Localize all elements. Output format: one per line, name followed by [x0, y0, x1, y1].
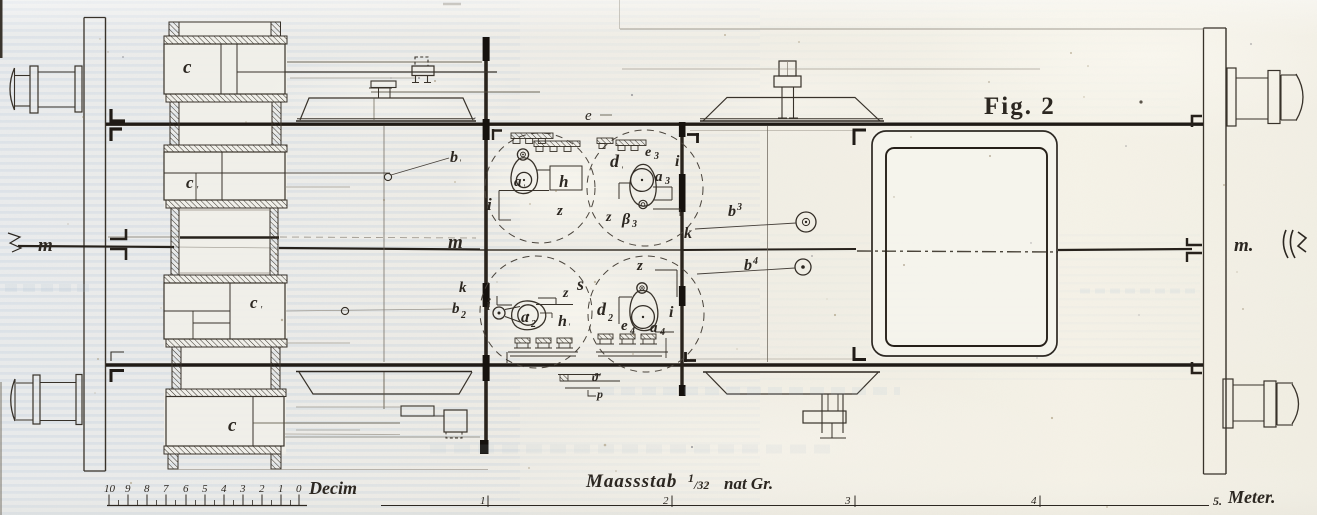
svg-text:i: i [486, 295, 491, 314]
svg-text:8: 8 [144, 483, 150, 495]
svg-text:2: 2 [607, 313, 613, 324]
svg-text:Maassstab: Maassstab [585, 471, 677, 492]
svg-text:2: 2 [259, 483, 265, 495]
svg-text:a: a [655, 169, 663, 185]
svg-text:c: c [228, 415, 237, 436]
svg-text:1: 1 [480, 495, 486, 507]
svg-text:h: h [559, 172, 568, 191]
svg-text:m.: m. [1234, 235, 1254, 256]
svg-text:3: 3 [664, 176, 670, 187]
svg-text:3: 3 [631, 219, 637, 230]
svg-text:a: a [650, 320, 658, 336]
svg-text:2: 2 [460, 310, 466, 321]
svg-text:3: 3 [844, 495, 851, 507]
svg-text:5.: 5. [1213, 494, 1222, 508]
svg-text:z: z [605, 210, 612, 225]
svg-text:2: 2 [663, 495, 669, 507]
svg-text:10: 10 [104, 483, 116, 495]
svg-text:β: β [621, 211, 631, 228]
svg-text:4: 4 [221, 483, 227, 495]
svg-text:z: z [562, 286, 569, 301]
svg-text:m: m [448, 232, 463, 253]
svg-text:b: b [450, 149, 458, 166]
svg-text:b: b [452, 301, 460, 317]
svg-text:5: 5 [202, 483, 208, 495]
svg-text:e: e [621, 318, 628, 334]
svg-text:i: i [675, 153, 680, 170]
svg-text:d: d [610, 151, 620, 171]
svg-text:i: i [487, 195, 492, 214]
svg-text:1: 1 [278, 483, 284, 495]
svg-text:a: a [514, 174, 522, 190]
svg-text:0: 0 [296, 483, 302, 495]
svg-text:e: e [645, 145, 651, 160]
svg-text:Meter.: Meter. [1227, 487, 1276, 507]
svg-text:k: k [459, 280, 467, 296]
svg-text:9: 9 [125, 483, 131, 495]
svg-text:2: 2 [530, 319, 536, 330]
svg-text:7: 7 [163, 483, 169, 495]
svg-text:4: 4 [752, 256, 758, 267]
svg-text:s: s [576, 274, 584, 294]
svg-text:4: 4 [1031, 495, 1037, 507]
svg-text:3: 3 [239, 483, 246, 495]
svg-text:ϑ′: ϑ′ [592, 370, 602, 384]
svg-text:b: b [728, 203, 736, 220]
svg-text:c: c [183, 57, 192, 78]
svg-text:4: 4 [659, 327, 665, 338]
svg-text:e: e [585, 108, 592, 124]
svg-text:Decim: Decim [308, 478, 357, 498]
svg-text:k: k [684, 225, 692, 242]
svg-text:3: 3 [653, 151, 659, 162]
svg-text:Fig. 2: Fig. 2 [984, 93, 1056, 120]
svg-text:i: i [669, 304, 674, 321]
svg-text:z: z [556, 203, 563, 219]
svg-text:h: h [558, 313, 567, 330]
svg-text:b: b [744, 257, 752, 274]
svg-text:c: c [186, 173, 194, 192]
svg-text:nat Gr.: nat Gr. [724, 474, 773, 493]
svg-text:3: 3 [736, 202, 742, 213]
svg-text:c: c [250, 293, 258, 312]
svg-text:d: d [597, 299, 607, 319]
svg-text:a: a [521, 309, 529, 326]
svg-text:6: 6 [183, 483, 189, 495]
svg-text:z: z [636, 258, 643, 274]
svg-text:m: m [38, 235, 53, 256]
